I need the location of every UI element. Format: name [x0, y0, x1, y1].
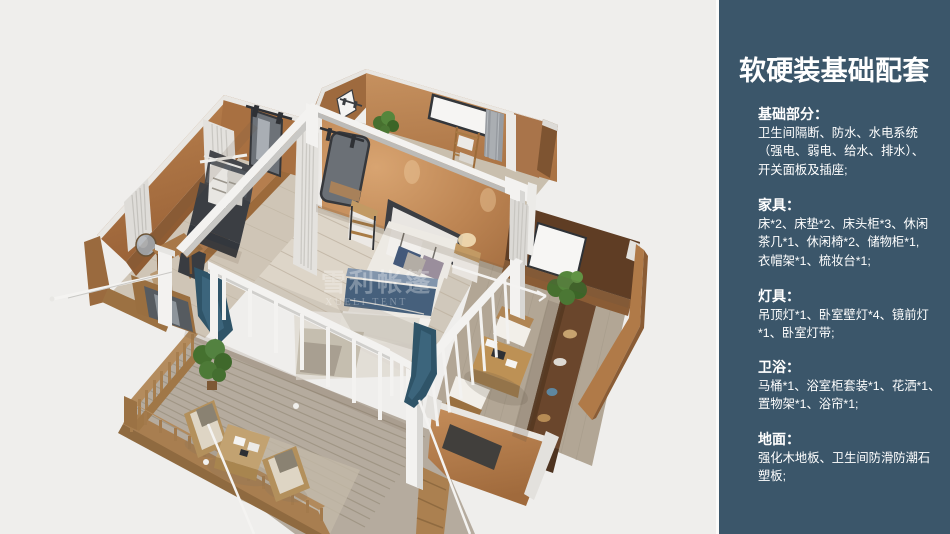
svg-text:XUELI TENT: XUELI TENT [325, 297, 408, 308]
svg-text:雪利帐篷: 雪利帐篷 [321, 268, 433, 297]
